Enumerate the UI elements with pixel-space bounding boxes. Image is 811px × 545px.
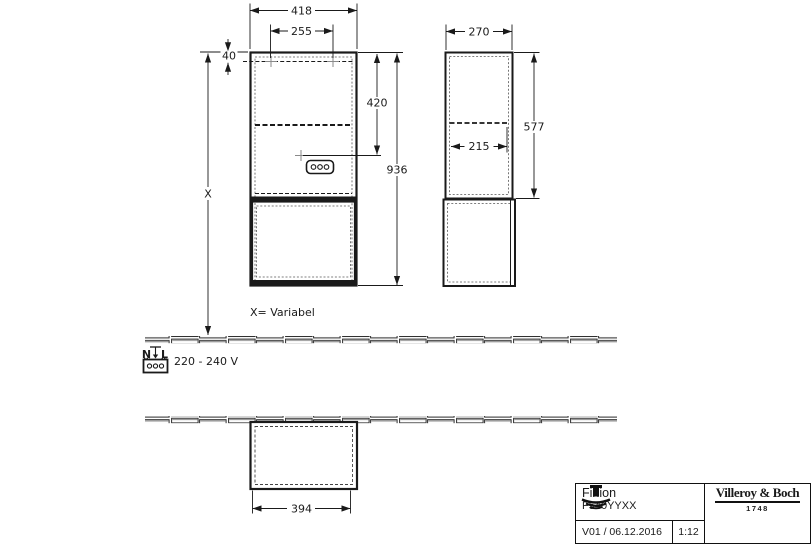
dim-label-side-depth: 270 xyxy=(469,26,490,39)
drawing-scale: 1:12 xyxy=(673,521,704,543)
front-view xyxy=(243,53,381,286)
dim-label-side-upper-height: 577 xyxy=(524,121,545,134)
floor-line-upper xyxy=(145,336,617,343)
dim-label-front-upper-height: 420 xyxy=(367,97,388,110)
dim-label-front-total-width: 418 xyxy=(291,5,312,18)
socket-outlet-icon xyxy=(144,360,168,373)
title-block: Finion F540YYXX V01 / 06.12.2016 1:12 Vi… xyxy=(575,483,811,544)
dim-label-front-variable-height: X xyxy=(204,188,212,201)
version-date: V01 / 06.12.2016 xyxy=(576,521,673,543)
brand-name: Villeroy & Boch xyxy=(715,486,801,503)
ground-arrow-icon xyxy=(153,355,158,359)
bottom-view xyxy=(251,422,358,489)
technical-drawing-canvas: 418 255 40 X 420 936 270 577 215 394 X= … xyxy=(0,0,811,545)
power-connection-symbol: N L 220 - 240 V xyxy=(142,347,239,373)
side-view xyxy=(444,53,516,287)
villeroy-boch-logo-icon xyxy=(576,484,616,510)
voltage-note: 220 - 240 V xyxy=(174,355,238,368)
floor-line-lower xyxy=(145,416,617,423)
technical-drawing-page: 418 255 40 X 420 936 270 577 215 394 X= … xyxy=(0,0,811,545)
brand-logo: Villeroy & Boch 1748 xyxy=(705,484,810,543)
brand-year: 1748 xyxy=(746,504,769,513)
dim-label-side-inner-depth: 215 xyxy=(469,140,490,153)
dim-label-front-top-offset: 40 xyxy=(222,50,236,63)
dim-label-front-total-height: 936 xyxy=(387,164,408,177)
dim-label-bottom-opening-width: 394 xyxy=(291,503,312,516)
dim-label-front-inner-width: 255 xyxy=(291,25,312,38)
power-socket-icon xyxy=(307,161,334,174)
variable-note: X= Variabel xyxy=(250,306,315,319)
